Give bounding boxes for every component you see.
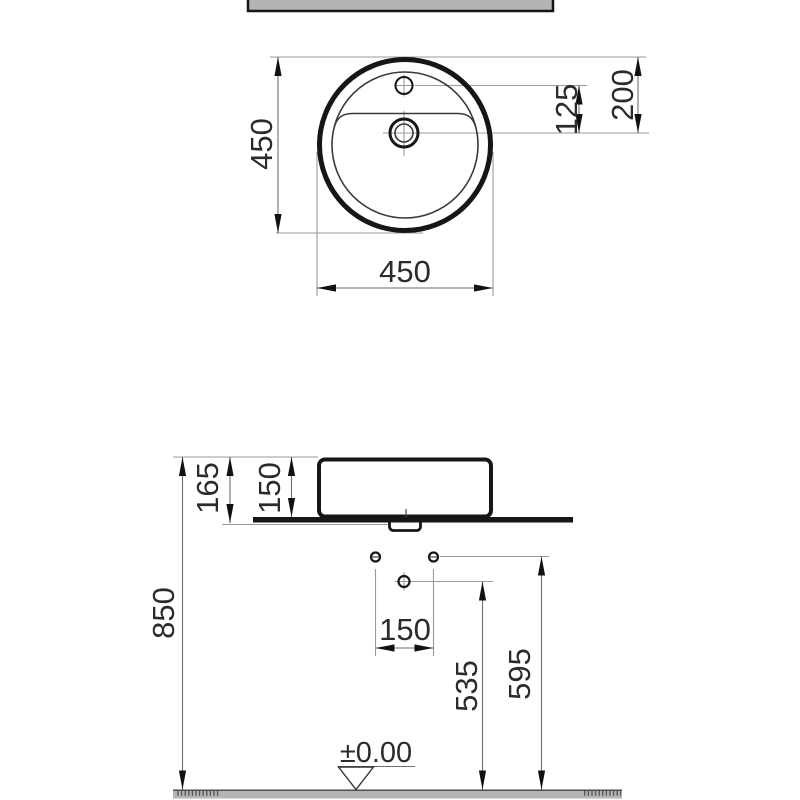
basin-body [319,460,491,517]
dim-label-overall-height: 450 [244,118,279,170]
floor-hatch-right [584,791,621,796]
dim-label-overall-width: 450 [379,254,431,289]
wall-section [248,0,553,11]
drawing-canvas: 450 450 125 200 165 150 850 [0,0,800,800]
dim-label-counter-height: 850 [146,587,181,639]
datum-triangle-icon [339,767,374,790]
dim-label-tap-to-drain: 125 [549,84,584,136]
dim-label-basin-height: 150 [252,462,287,514]
dim-label-hole-spacing: 150 [379,612,431,647]
dim-label-inlet-height: 595 [502,648,537,700]
floor-datum-label: ±0.00 [340,737,412,769]
floor-hatch-left [175,791,219,796]
plan-view: 450 450 125 200 [244,57,649,296]
dim-label-drain-height: 535 [449,660,484,712]
washbasin-technical-drawing: 450 450 125 200 165 150 850 [0,0,800,800]
floor-datum: ±0.00 [173,737,622,799]
floor-section [173,790,622,799]
dim-label-edge-to-drain: 200 [605,69,640,121]
dim-label-rim-height-incl-counter: 165 [190,462,225,514]
